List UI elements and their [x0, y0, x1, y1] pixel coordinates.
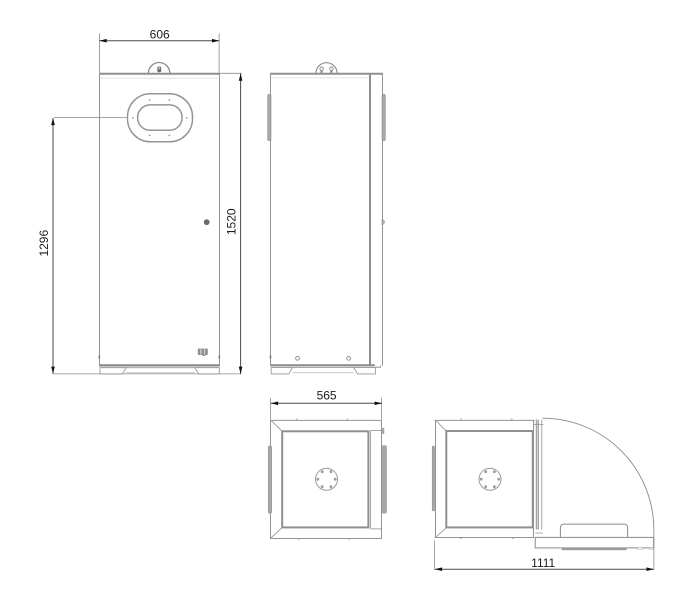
- svg-text:1111: 1111: [531, 556, 555, 570]
- svg-text:1520: 1520: [224, 208, 238, 235]
- svg-text:1296: 1296: [37, 230, 51, 257]
- svg-text:606: 606: [150, 28, 170, 42]
- svg-text:565: 565: [317, 389, 337, 403]
